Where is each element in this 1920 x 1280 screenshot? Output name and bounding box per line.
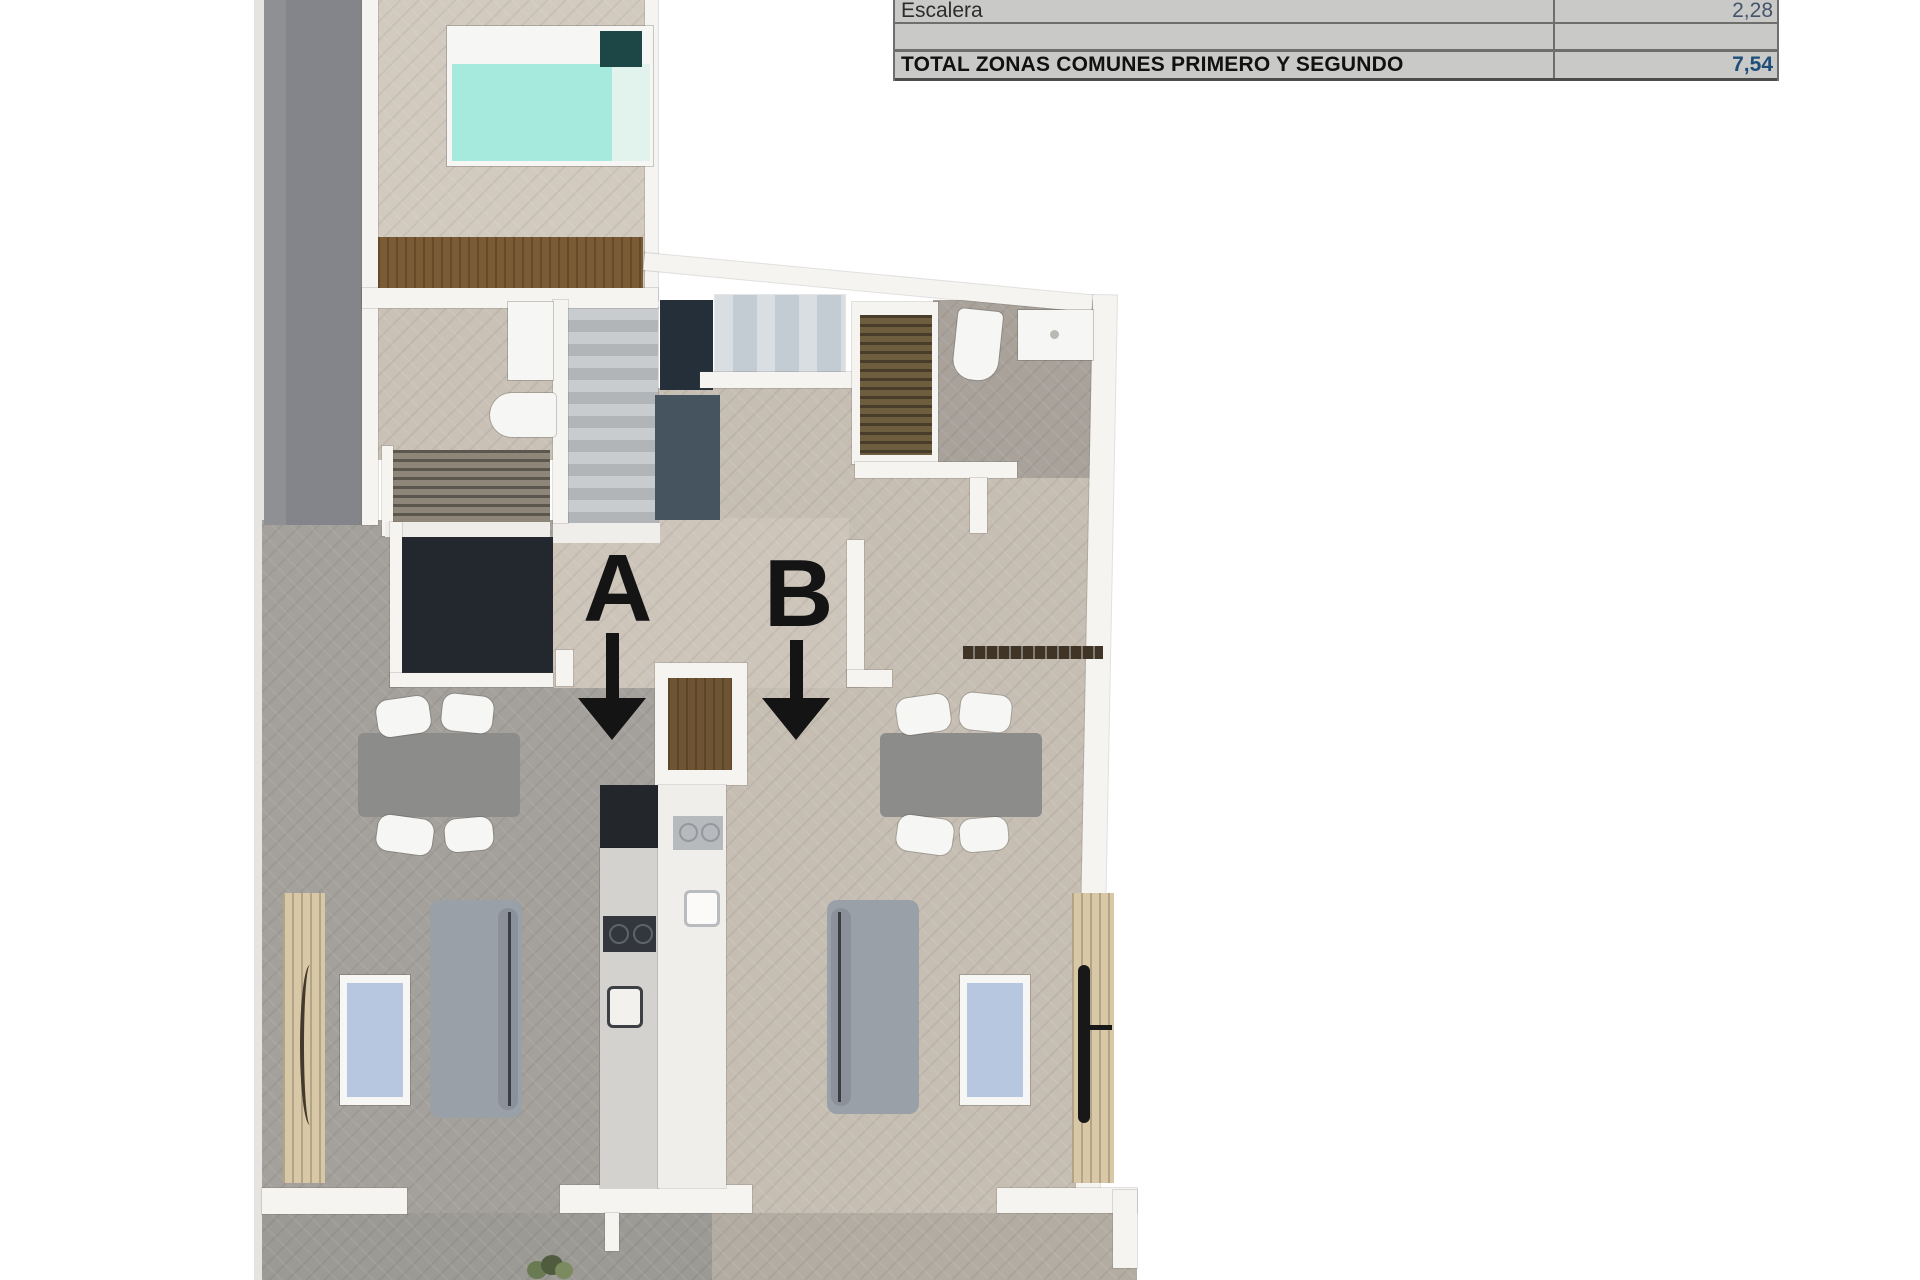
wardrobe (378, 237, 643, 288)
total-label: TOTAL ZONAS COMUNES PRIMERO Y SEGUNDO (895, 52, 1555, 78)
chair-icon (959, 816, 1010, 853)
cooktop-a-burner-2 (633, 924, 653, 944)
stair-bluegray-block (655, 395, 720, 520)
floor-plan-page: A B Escalera 2,28 TOTAL ZONAS COMUNES PR… (0, 0, 1920, 1280)
sofa-b-backrest (831, 908, 851, 1106)
cooktop-b-burner-2 (701, 823, 720, 842)
door-a-left-jamb (556, 650, 573, 686)
unit-a-arrow (606, 633, 619, 701)
dark-gray-band (264, 0, 362, 525)
sofa-b-back-line (838, 912, 841, 1102)
row-label (895, 24, 1555, 49)
dining-table-b (880, 733, 1042, 817)
total-value: 7,54 (1555, 52, 1777, 78)
grille-slats (860, 315, 932, 455)
radiator-bar (963, 646, 1103, 659)
chair-icon (440, 692, 495, 734)
table-row-total: TOTAL ZONAS COMUNES PRIMERO Y SEGUNDO 7,… (895, 51, 1777, 81)
blue-panel-b (967, 983, 1023, 1097)
terrace-corner-wall (1113, 1190, 1137, 1268)
terrace-floor-right (712, 1213, 1137, 1280)
toilet-a-icon (490, 393, 556, 437)
storage-navy-block (402, 537, 553, 675)
kitchen-a-tall-cabinet (600, 785, 658, 848)
unit-b-arrow (790, 640, 803, 701)
bedroom-left-wall (362, 0, 378, 525)
bed-sheet (612, 64, 650, 161)
cooktop-a-burner-1 (609, 924, 629, 944)
terrace-divider-stub (605, 1213, 619, 1251)
bed-pillow (600, 31, 642, 67)
chair-icon (375, 813, 435, 856)
door-b-right-jamb (847, 670, 892, 687)
table-row-spacer (895, 24, 1777, 51)
unit-a-label: A (583, 552, 652, 627)
storage-frame-bottom (390, 673, 553, 687)
table-row: Escalera 2,28 (895, 0, 1777, 24)
terrace-wall-center (560, 1185, 752, 1213)
chair-icon (958, 691, 1013, 733)
row-value (1555, 24, 1777, 49)
sink-a-icon (607, 986, 643, 1028)
bathroom-b-wall (855, 462, 1017, 478)
hall-right-wall (847, 540, 864, 687)
chair-icon (375, 694, 433, 738)
unit-b-arrow-head (762, 698, 830, 740)
stairs-flight-main (568, 308, 658, 523)
terrace-floor-left (262, 1213, 712, 1280)
plant-icon (525, 1255, 575, 1280)
sink-b-island-icon (684, 890, 720, 927)
shower-column (508, 302, 553, 380)
stairs-flight-carpet (393, 450, 550, 522)
chair-icon (895, 692, 953, 736)
areas-summary-table: Escalera 2,28 TOTAL ZONAS COMUNES PRIMER… (893, 0, 1779, 81)
chair-icon (895, 813, 955, 856)
blue-panel-a (347, 983, 403, 1097)
sofa-a-back-line (508, 912, 511, 1106)
floor-plan: A B (0, 0, 1920, 1280)
unit-b-label: B (764, 557, 833, 632)
chair-icon (444, 816, 495, 853)
stairs-bottom-wall (700, 372, 855, 388)
bed-mattress (452, 64, 612, 161)
tv-bracket (1090, 1025, 1112, 1030)
kitchen-slab-wood (668, 678, 732, 770)
cooktop-b-burner-1 (679, 823, 698, 842)
tv-icon (1078, 965, 1090, 1123)
terrace-wall-left (262, 1188, 407, 1214)
sideboard-a-handle (300, 965, 320, 1125)
plant-leaf (555, 1262, 573, 1279)
row-value: 2,28 (1555, 0, 1777, 22)
stairs-flight-upper (715, 295, 845, 372)
stair-strip-white (385, 522, 550, 537)
row-label: Escalera (895, 0, 1555, 22)
bathroom-b-wall-stub (970, 478, 987, 533)
unit-a-arrow-head (578, 698, 646, 740)
dining-table-a (358, 733, 520, 817)
sink-b-drain (1050, 330, 1059, 339)
storage-frame (390, 522, 402, 687)
